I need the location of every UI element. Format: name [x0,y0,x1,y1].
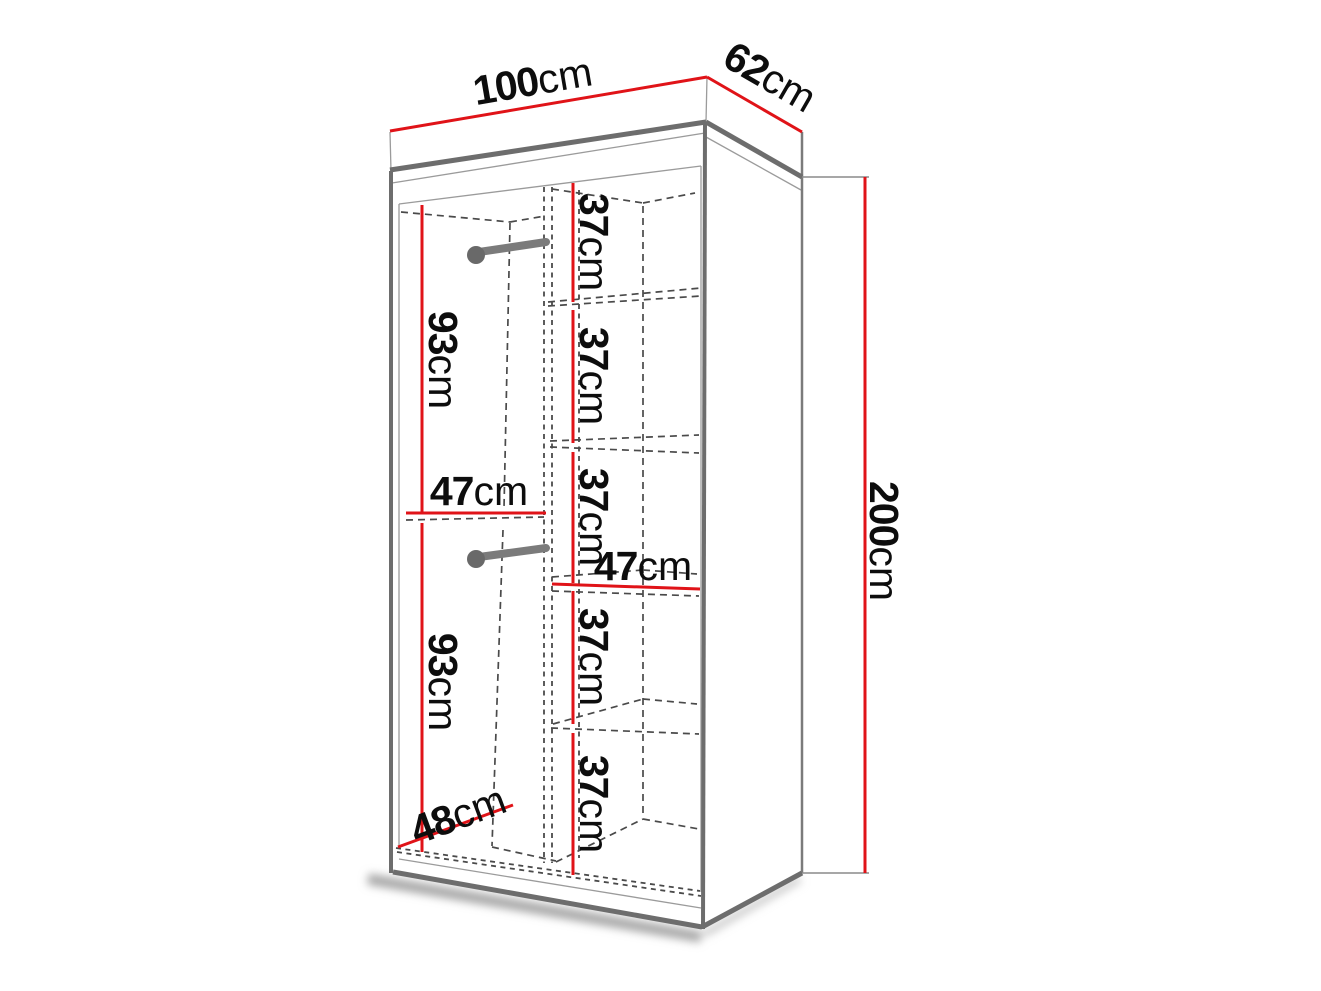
label-height: 200cm [861,481,907,601]
label-shelf-gap-1: 37cm [571,193,617,291]
label-hanging-lower: 93cm [420,633,466,731]
label-height-unit: cm [861,546,907,601]
label-width-unit: cm [534,48,596,103]
label-hanging-upper: 93cm [420,311,466,409]
wardrobe-dimension-diagram: 100cm 62cm 200cm 37cm 37cm 37cm 37cm 37c… [0,0,1321,991]
right-side-face [703,122,802,929]
label-height-number: 200 [861,481,907,547]
label-left-width: 47cm [430,468,528,514]
diagram-canvas: 100cm 62cm 200cm 37cm 37cm 37cm 37cm 37c… [0,0,1321,991]
front-right-edge [703,122,705,929]
label-shelf-gap-2: 37cm [571,327,617,425]
extension-lines [802,177,869,873]
label-shelf-gap-5: 37cm [571,755,617,853]
label-shelf-gap-4: 37cm [571,608,617,706]
label-right-width: 47cm [594,543,692,589]
